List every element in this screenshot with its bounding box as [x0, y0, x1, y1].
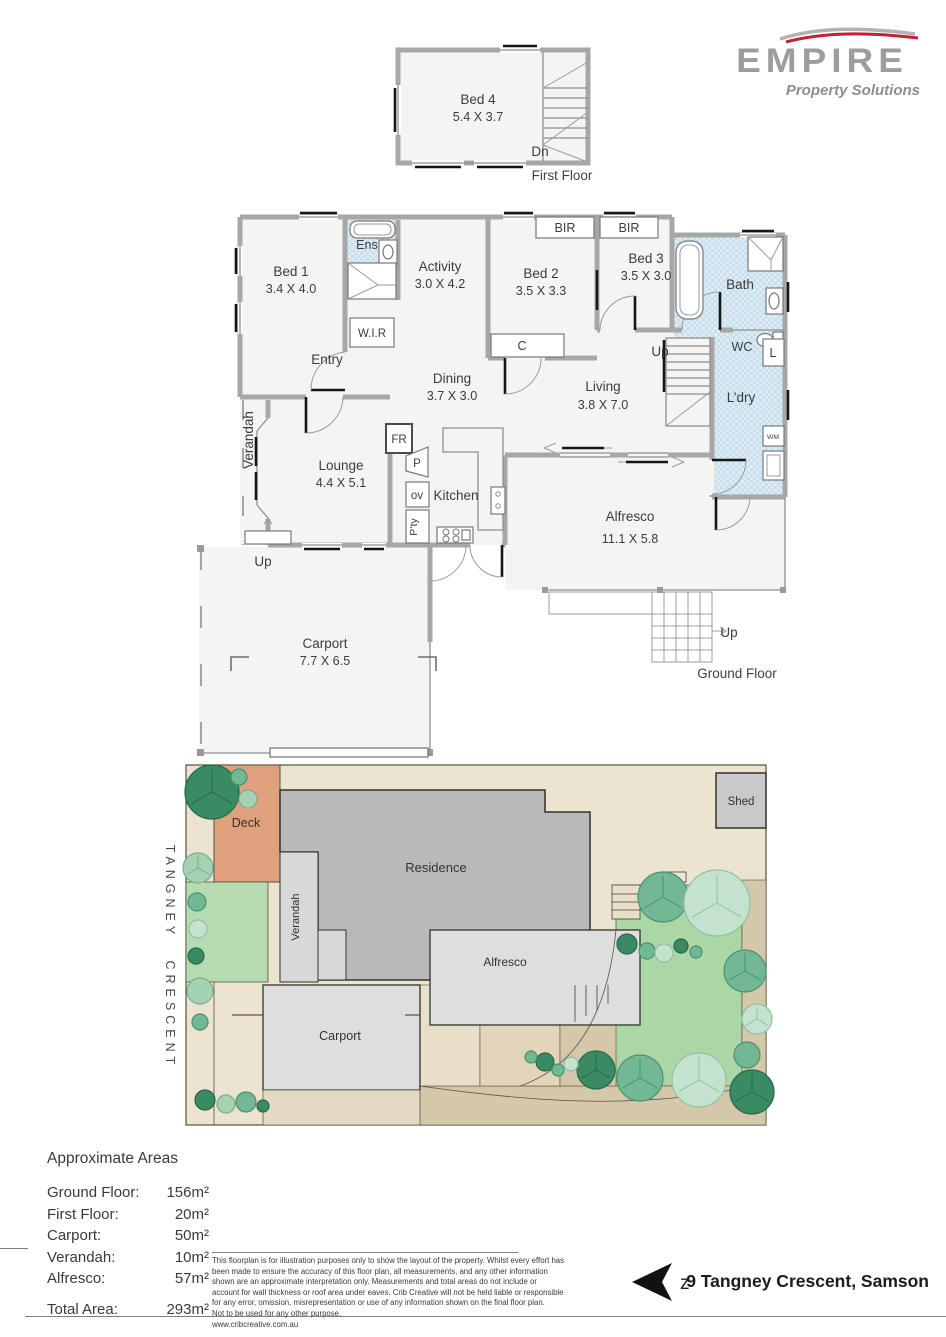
tree-icon	[195, 1090, 215, 1110]
site-verandah-return	[318, 930, 346, 980]
logo-tagline: Property Solutions	[714, 82, 920, 99]
tree-icon	[231, 769, 247, 785]
brand-logo: EMPIRE Property Solutions	[714, 26, 930, 104]
ground-floor-plan: Bed 1 3.4 X 4.0 Ens W.I.R Activity 3.0 X…	[197, 213, 788, 757]
site-driveway	[263, 1090, 420, 1125]
area-value: 20m²	[175, 1204, 209, 1226]
tree-icon	[617, 934, 637, 954]
room-label-wir: W.I.R	[358, 328, 386, 340]
label-fridge: FR	[391, 434, 406, 446]
stair-label-dn: Dn	[531, 144, 548, 159]
tree-icon	[564, 1057, 578, 1071]
disclaimer-line: been made to ensure the accuracy of this…	[212, 1267, 624, 1278]
room-label-laundry: L’dry	[727, 390, 756, 405]
interior-stairs	[664, 338, 710, 426]
room-dims-bed3: 3.5 X 3.0	[621, 269, 671, 283]
room-label-bed3: Bed 3	[628, 251, 663, 266]
rule-left	[0, 1248, 28, 1249]
label-pantry: P’ty	[408, 518, 420, 536]
site-plan: Deck Residence Alfresco Carport Shed Ver…	[163, 765, 774, 1125]
tree-icon	[188, 893, 206, 911]
site-alfresco	[430, 930, 640, 1025]
area-label: Carport:	[47, 1225, 101, 1247]
room-dims-bed4: 5.4 X 3.7	[453, 110, 503, 124]
approximate-areas: Approximate Areas Ground Floor: 156m² Fi…	[47, 1150, 209, 1320]
area-label: Verandah:	[47, 1247, 115, 1269]
tree-icon	[217, 1095, 235, 1113]
label-up-front: Up	[254, 554, 271, 569]
area-label: Alfresco:	[47, 1268, 105, 1290]
cupboard-box	[491, 334, 564, 357]
floorplan-page: Bed 4 5.4 X 3.7 Dn First Floor	[0, 0, 946, 1337]
compass-arrow-icon	[632, 1263, 672, 1301]
plan-drawing: Bed 4 5.4 X 3.7 Dn First Floor	[0, 0, 946, 1337]
room-label-bath: Bath	[726, 277, 754, 292]
tree-icon	[525, 1051, 537, 1063]
disclaimer: This floorplan is for illustration purpo…	[212, 1256, 624, 1330]
site-label-alfresco: Alfresco	[483, 955, 527, 969]
first-floor-caption: First Floor	[532, 168, 593, 183]
tree-icon	[655, 944, 673, 962]
room-label-cupboard: C	[517, 339, 526, 353]
room-label-dining: Dining	[433, 371, 471, 386]
site-label-shed: Shed	[728, 796, 755, 808]
tree-icon	[674, 939, 688, 953]
disclaimer-line: for any error, omission, misrepresentati…	[212, 1298, 624, 1309]
room-dims-lounge: 4.4 X 5.1	[316, 476, 366, 490]
label-entry: Entry	[311, 352, 343, 367]
room-label-lounge: Lounge	[318, 458, 363, 473]
tree-icon	[236, 1092, 256, 1112]
room-label-linen: L	[769, 346, 776, 360]
label-pantry-p: P	[413, 458, 421, 470]
first-floor-plan: Bed 4 5.4 X 3.7 Dn First Floor	[395, 46, 593, 183]
property-address: 9 Tangney Crescent, Samson	[686, 1271, 929, 1292]
tree-icon	[187, 978, 213, 1004]
area-label: Ground Floor:	[47, 1182, 140, 1204]
site-label-verandah: Verandah	[290, 893, 302, 940]
room-label-carport: Carport	[302, 636, 347, 651]
area-value: 10m²	[175, 1247, 209, 1269]
disclaimer-line: shown are an approximate interpretation …	[212, 1277, 624, 1288]
disclaimer-line: This floorplan is for illustration purpo…	[212, 1256, 624, 1267]
logo-wordmark: EMPIRE	[714, 42, 930, 81]
areas-title: Approximate Areas	[47, 1150, 209, 1168]
area-row-verandah: Verandah: 10m²	[47, 1247, 209, 1269]
label-up-rear: Up	[720, 625, 737, 640]
area-label: First Floor:	[47, 1204, 119, 1226]
label-wm: WM	[767, 434, 779, 441]
area-row-carport: Carport: 50m²	[47, 1225, 209, 1247]
area-row-first-floor: First Floor: 20m²	[47, 1204, 209, 1226]
room-label-bed1: Bed 1	[273, 264, 308, 279]
tree-icon	[639, 943, 655, 959]
rule-disclaimer-top	[212, 1252, 518, 1253]
area-row-ground-floor: Ground Floor: 156m²	[47, 1182, 209, 1204]
tree-icon	[189, 920, 207, 938]
tree-icon	[188, 948, 204, 964]
area-value: 57m²	[175, 1268, 209, 1290]
room-label-kitchen: Kitchen	[433, 488, 478, 503]
tree-icon	[192, 1014, 208, 1030]
room-label-alfresco: Alfresco	[606, 509, 655, 524]
area-value: 156m²	[166, 1182, 209, 1204]
disclaimer-line: Not to be used for any other purpose.	[212, 1309, 624, 1320]
room-label-activity: Activity	[419, 259, 462, 274]
tree-icon	[734, 1042, 760, 1068]
site-label-residence: Residence	[405, 860, 466, 875]
room-dims-living: 3.8 X 7.0	[578, 398, 628, 412]
tree-icon	[257, 1100, 269, 1112]
room-dims-activity: 3.0 X 4.2	[415, 277, 465, 291]
room-label-bed4: Bed 4	[460, 92, 496, 107]
disclaimer-line: account for wall thickness or roof area …	[212, 1288, 624, 1299]
tree-icon	[552, 1064, 564, 1076]
room-dims-bed1: 3.4 X 4.0	[266, 282, 316, 296]
room-dims-dining: 3.7 X 3.0	[427, 389, 477, 403]
robe-label-bir-left: BIR	[555, 221, 576, 235]
tree-icon	[690, 946, 702, 958]
room-dims-carport: 7.7 X 6.5	[300, 654, 350, 668]
tree-icon	[536, 1053, 554, 1071]
tree-icon	[239, 790, 257, 808]
room-label-ens: Ens	[356, 238, 378, 252]
label-oven: ov	[411, 490, 423, 502]
room-dims-alfresco: 11.1 X 5.8	[602, 532, 658, 546]
room-dims-bed2: 3.5 X 3.3	[516, 284, 566, 298]
site-label-deck: Deck	[232, 816, 261, 830]
ground-floor-caption: Ground Floor	[697, 666, 777, 681]
area-value: 50m²	[175, 1225, 209, 1247]
disclaimer-link: www.cribcreative.com.au	[212, 1320, 624, 1331]
label-verandah: Verandah	[241, 411, 256, 469]
site-label-carport: Carport	[319, 1029, 361, 1043]
room-label-wc: WC	[732, 340, 753, 354]
room-label-bed2: Bed 2	[523, 266, 558, 281]
street-label: TANGNEY CRESCENT	[163, 845, 177, 1070]
label-stairs-up: Up	[651, 344, 668, 359]
room-label-living: Living	[585, 379, 620, 394]
area-row-alfresco: Alfresco: 57m²	[47, 1268, 209, 1290]
robe-label-bir-right: BIR	[619, 221, 640, 235]
